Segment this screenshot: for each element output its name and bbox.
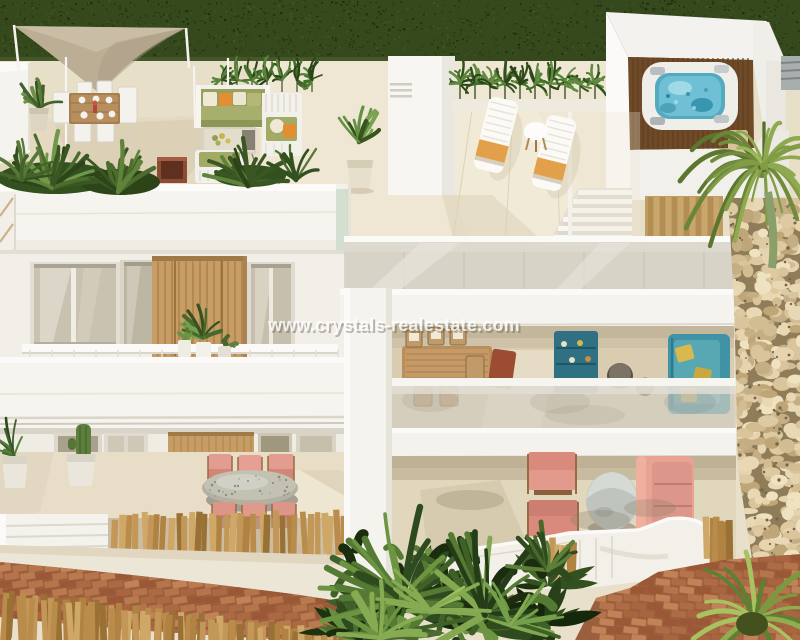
svg-text:www.crystals-realestate.com: www.crystals-realestate.com	[267, 315, 520, 335]
